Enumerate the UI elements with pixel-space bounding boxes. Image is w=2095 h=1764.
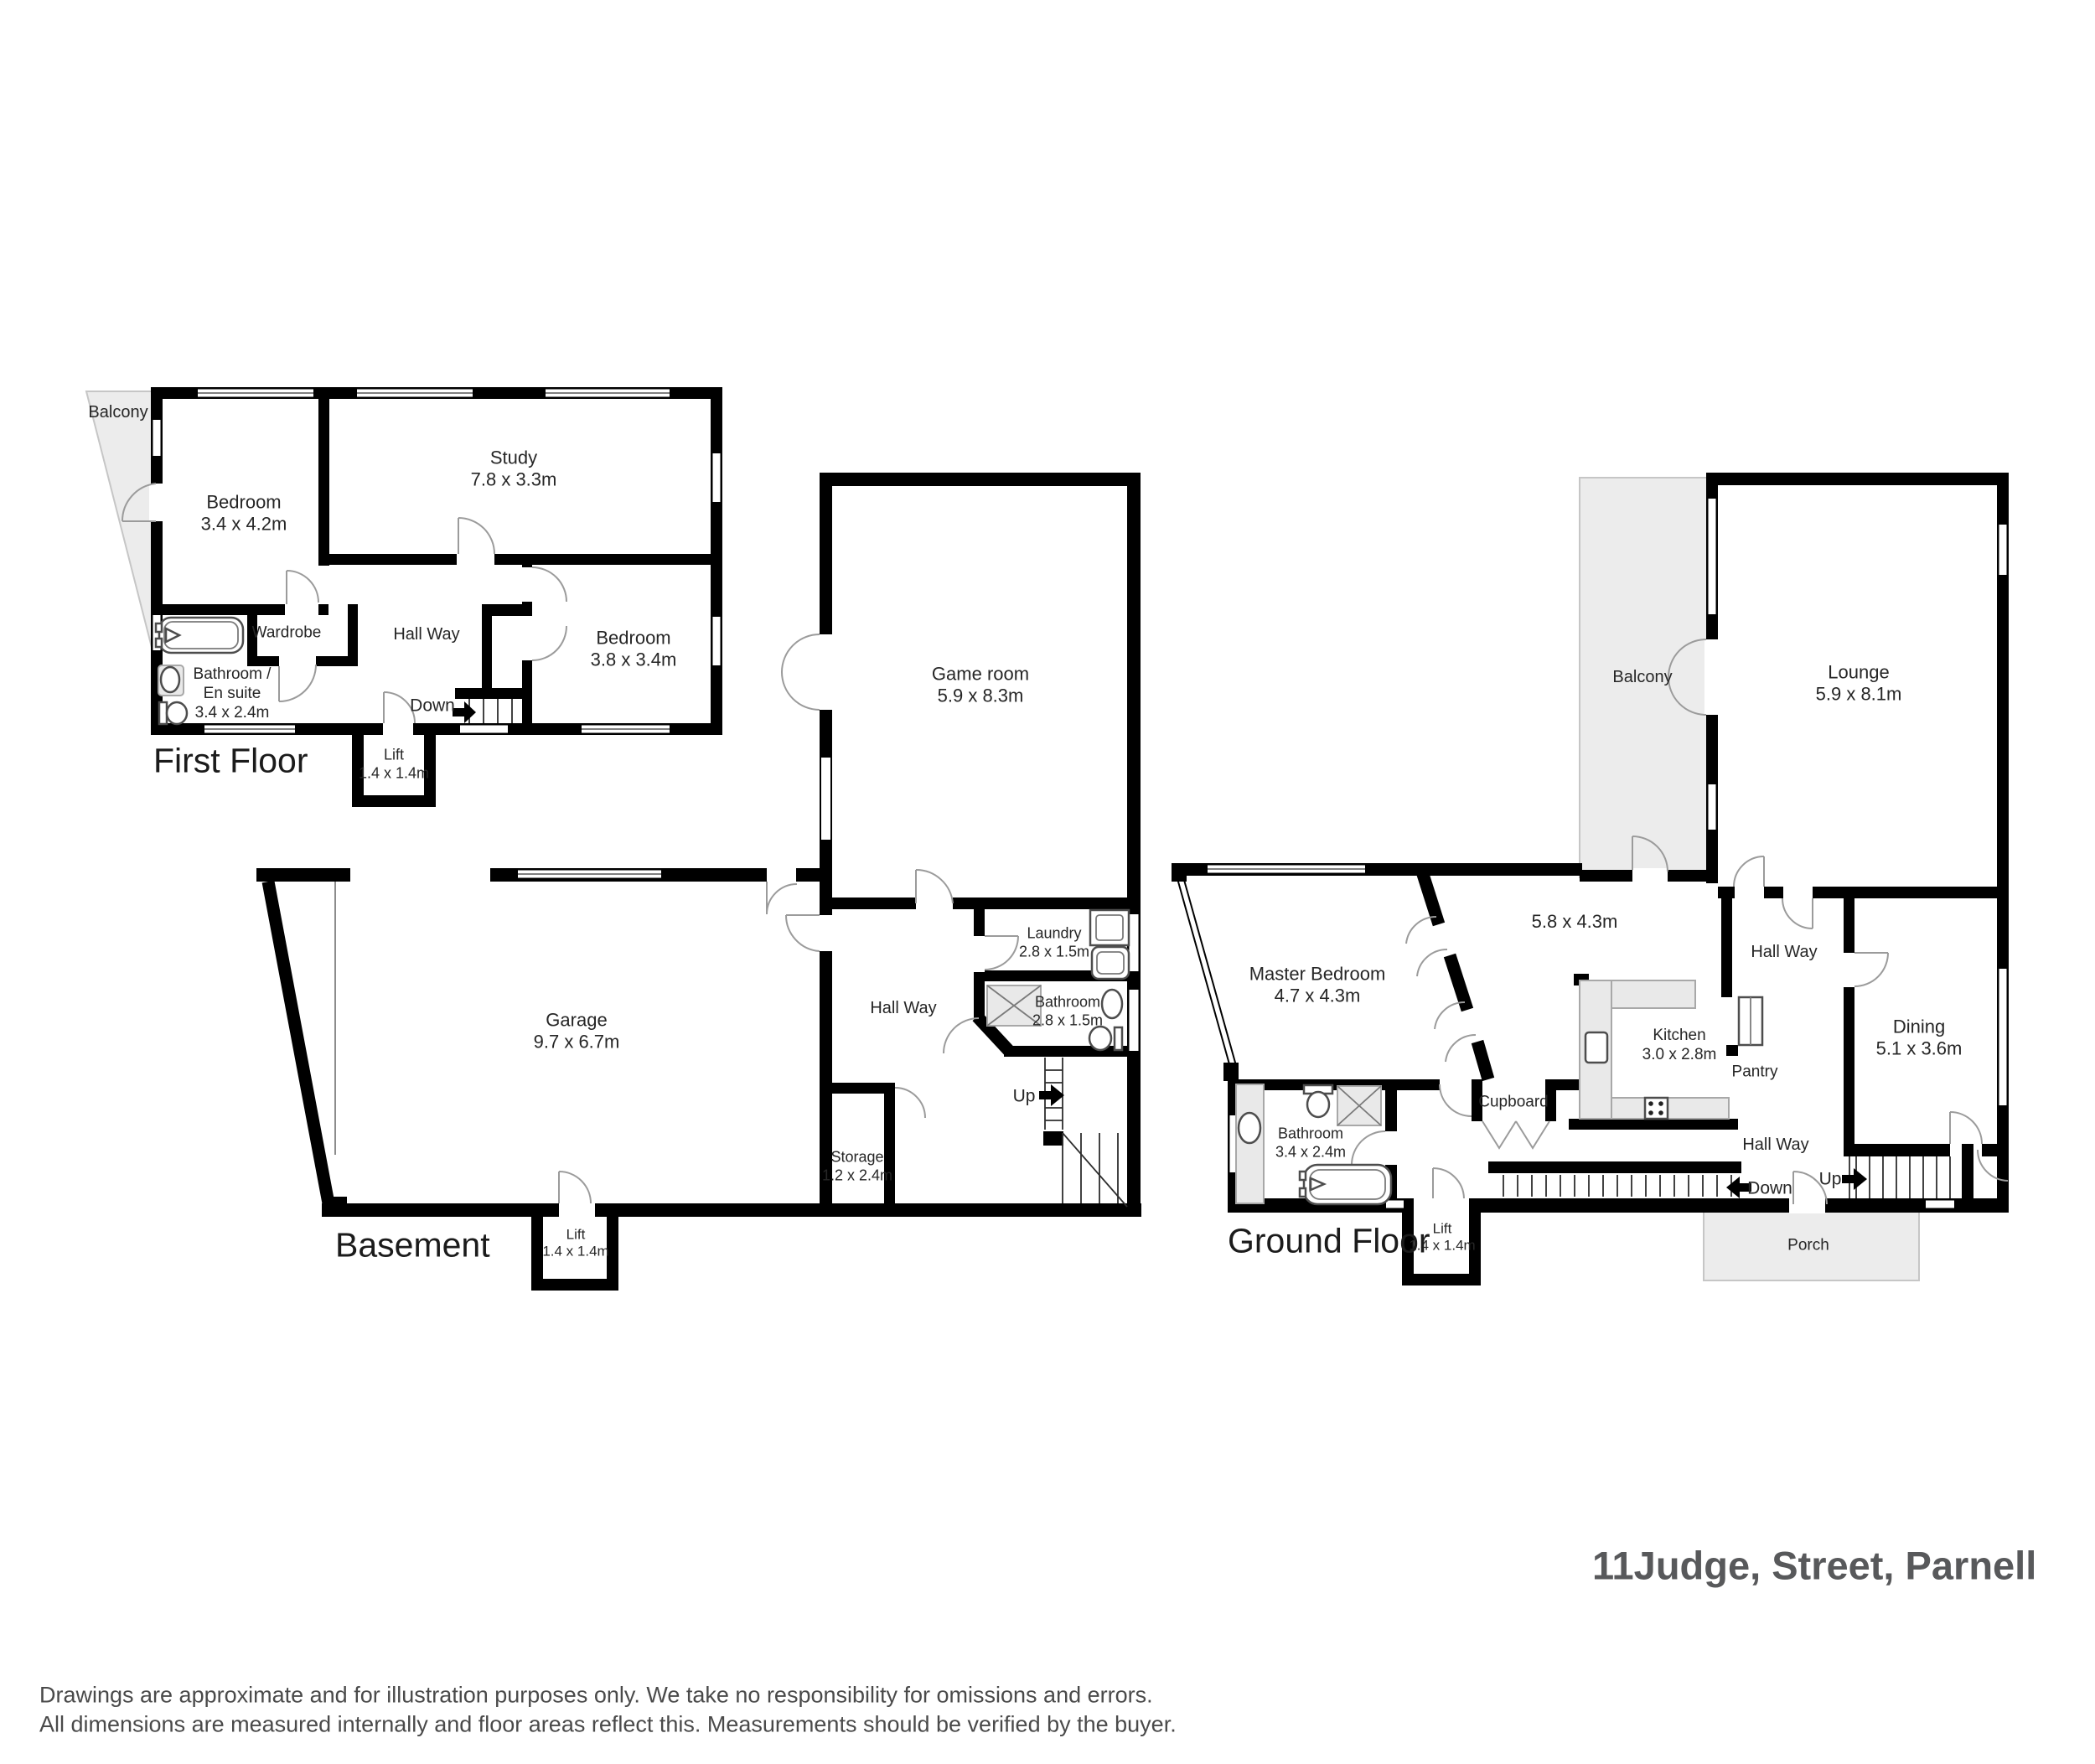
label-down-first: Down — [410, 695, 455, 716]
label-master-bedroom: Master Bedroom 4.7 x 4.3m — [1249, 964, 1386, 1008]
label-laundry: Laundry 2.8 x 1.5m — [1019, 924, 1089, 960]
label-bedroom1: Bedroom 3.4 x 4.2m — [201, 492, 287, 536]
label-bathroom-basement: Bathroom 2.8 x 1.5m — [1032, 993, 1103, 1029]
label-cupboard: Cupboard — [1478, 1094, 1548, 1113]
label-up-ground: Up — [1819, 1168, 1842, 1189]
basement-title: Basement — [335, 1226, 490, 1265]
first-floor-sink-icon — [158, 665, 184, 696]
master-bifold-wall — [1406, 869, 1488, 1079]
pantry-shelf-icon — [1739, 997, 1762, 1045]
first-floor-toilet-icon — [159, 702, 187, 724]
label-lift-first: Lift 1.4 x 1.4m — [359, 746, 429, 782]
label-game-room: Game room 5.9 x 8.3m — [932, 664, 1029, 708]
basement-washer-icon — [1090, 910, 1129, 945]
ground-shower-icon — [1337, 1086, 1381, 1125]
basement-toilet-icon — [1089, 1027, 1122, 1050]
label-study: Study 7.8 x 3.3m — [471, 447, 557, 492]
label-bathroom-first: Bathroom / En suite 3.4 x 2.4m — [194, 665, 272, 722]
basement-sink-icon — [1102, 990, 1122, 1018]
first-floor-title: First Floor — [153, 742, 308, 781]
master-angled-window-wall — [1172, 863, 1239, 1081]
label-wardrobe: Wardrobe — [252, 624, 322, 644]
first-floor-stairs — [469, 699, 512, 723]
ground-floor-title: Ground Floor — [1228, 1222, 1430, 1261]
disclaimer-line1: Drawings are approximate and for illustr… — [39, 1683, 1153, 1709]
label-bedroom2: Bedroom 3.8 x 3.4m — [591, 628, 677, 672]
label-up-basement: Up — [1013, 1085, 1036, 1106]
kitchen-sink-icon — [1585, 1032, 1607, 1063]
up-arrow-icon — [1842, 1168, 1867, 1190]
ground-sink-icon — [1239, 1113, 1260, 1143]
label-hallway-basement: Hall Way — [870, 998, 936, 1018]
floorplan-page: Balcony Bedroom 3.4 x 4.2m Study 7.8 x 3… — [0, 0, 2095, 1764]
basement-ramp-wall — [268, 882, 328, 1203]
label-family-room-dims: 5.8 x 4.3m — [1532, 911, 1618, 933]
label-lift-basement: Lift 1.4 x 1.4m — [542, 1227, 608, 1261]
ground-bathtub-icon — [1300, 1165, 1391, 1204]
ground-floor-plan — [1172, 473, 2009, 1285]
label-pantry: Pantry — [1732, 1063, 1778, 1083]
basement-stairs — [1043, 1058, 1127, 1207]
label-bathroom-ground: Bathroom 3.4 x 2.4m — [1275, 1125, 1346, 1161]
first-floor-bathtub-icon — [156, 618, 243, 653]
property-address: 11Judge, Street, Parnell — [1592, 1543, 2036, 1589]
first-floor-doors — [122, 484, 566, 723]
label-porch: Porch — [1787, 1237, 1829, 1256]
label-hallway-first: Hall Way — [393, 624, 459, 644]
label-balcony-ground: Balcony — [1612, 667, 1672, 687]
basement-doors — [559, 634, 1018, 1203]
label-storage: Storage 1.2 x 2.4m — [822, 1148, 892, 1184]
label-dining: Dining 5.1 x 3.6m — [1876, 1016, 1963, 1061]
floorplan-drawing — [0, 0, 2095, 1764]
down-arrow-icon — [453, 701, 476, 723]
label-hallway-upper: Hall Way — [1751, 942, 1817, 962]
label-down-ground: Down — [1747, 1177, 1792, 1198]
stove-icon — [1645, 1098, 1668, 1119]
label-hallway-lower: Hall Way — [1742, 1135, 1808, 1155]
label-lounge: Lounge 5.9 x 8.1m — [1816, 662, 1902, 706]
up-arrow-icon — [1039, 1084, 1064, 1106]
label-garage: Garage 9.7 x 6.7m — [534, 1010, 620, 1054]
basement-laundry-tub-icon — [1092, 947, 1129, 979]
label-kitchen: Kitchen 3.0 x 2.8m — [1642, 1027, 1717, 1065]
ground-toilet-icon — [1304, 1085, 1332, 1117]
disclaimer-line2: All dimensions are measured internally a… — [39, 1712, 1177, 1738]
first-floor-balcony-area — [86, 391, 156, 664]
basement-plan — [256, 473, 1141, 1291]
label-balcony: Balcony — [88, 402, 147, 422]
